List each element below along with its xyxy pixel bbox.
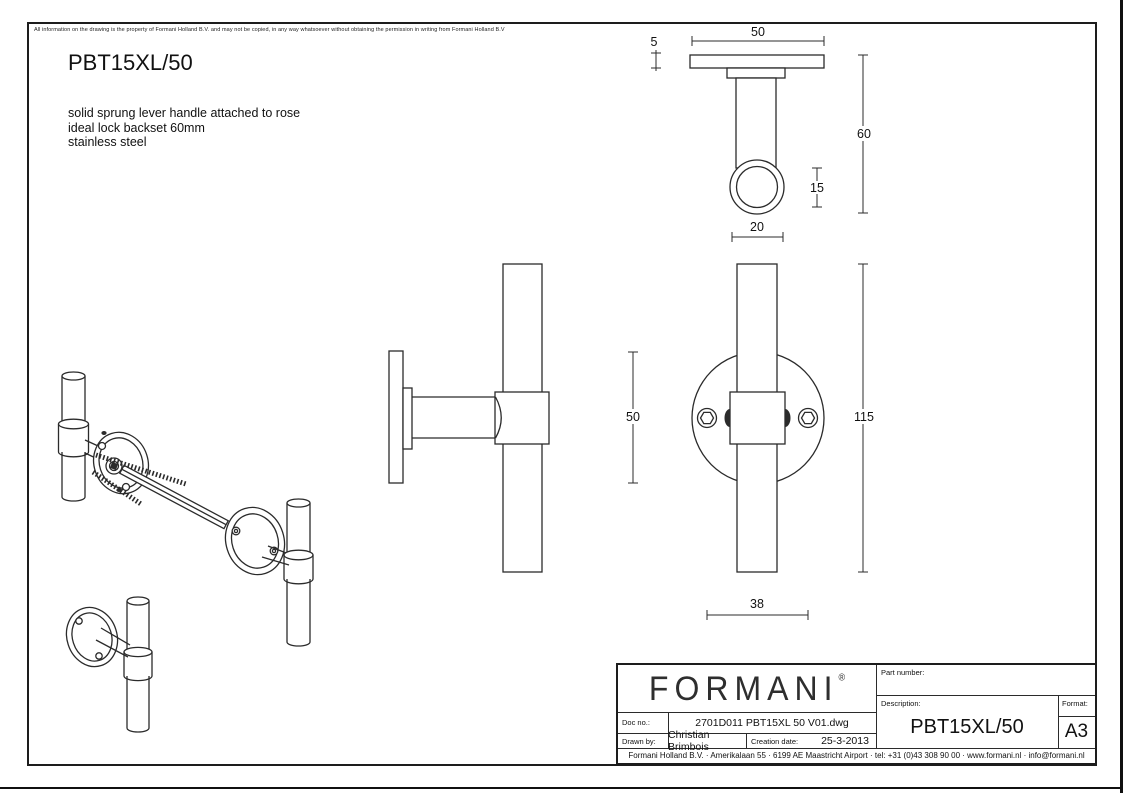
registered-mark: ® xyxy=(838,672,845,683)
drawn-by-value: Christian Brimbois xyxy=(668,733,746,748)
hex-screw-left xyxy=(698,409,717,428)
description-label: Description: xyxy=(881,699,1051,708)
iso-handle-assembled xyxy=(59,597,152,732)
logo-text: FORMANI xyxy=(649,669,839,708)
front-view-drawing xyxy=(692,264,824,572)
dim-handle-length-label: 115 xyxy=(854,410,874,424)
formani-logo: FORMANI® xyxy=(618,665,876,712)
dim-rose-width-label: 50 xyxy=(751,25,765,39)
doc-no-label: Doc no.: xyxy=(622,718,668,727)
scan-edge-bottom xyxy=(0,787,1123,789)
iso-spindle xyxy=(120,465,228,528)
description-value: PBT15XL/50 xyxy=(876,709,1058,745)
creation-date-value: 25-3-2013 xyxy=(814,733,876,748)
side-view-drawing xyxy=(389,264,549,572)
dim-tube-diameter-label: 15 xyxy=(810,181,824,195)
dim-screw-spacing-label: 38 xyxy=(750,597,764,611)
title-block: FORMANI® Doc no.: 2701D011 PBT15XL 50 V0… xyxy=(616,663,1097,765)
drawn-by-label: Drawn by: xyxy=(622,737,668,746)
top-view-drawing xyxy=(690,55,824,214)
part-number-label: Part number: xyxy=(881,668,1091,677)
company-footer: Formani Holland B.V. · Amerikalaan 55 · … xyxy=(618,748,1095,763)
dim-endcap-diameter-label: 20 xyxy=(750,220,764,234)
dim-rose-diameter-label: 50 xyxy=(626,410,640,424)
dim-rose-thickness-label: 5 xyxy=(651,35,658,49)
format-label: Format: xyxy=(1062,699,1094,708)
format-value: A3 xyxy=(1058,716,1095,748)
creation-date-label: Creation date: xyxy=(751,737,813,746)
isometric-view-drawing xyxy=(59,372,314,732)
iso-rose-front xyxy=(217,500,293,583)
dim-projection-label: 60 xyxy=(857,127,871,141)
hex-screw-right xyxy=(799,409,818,428)
